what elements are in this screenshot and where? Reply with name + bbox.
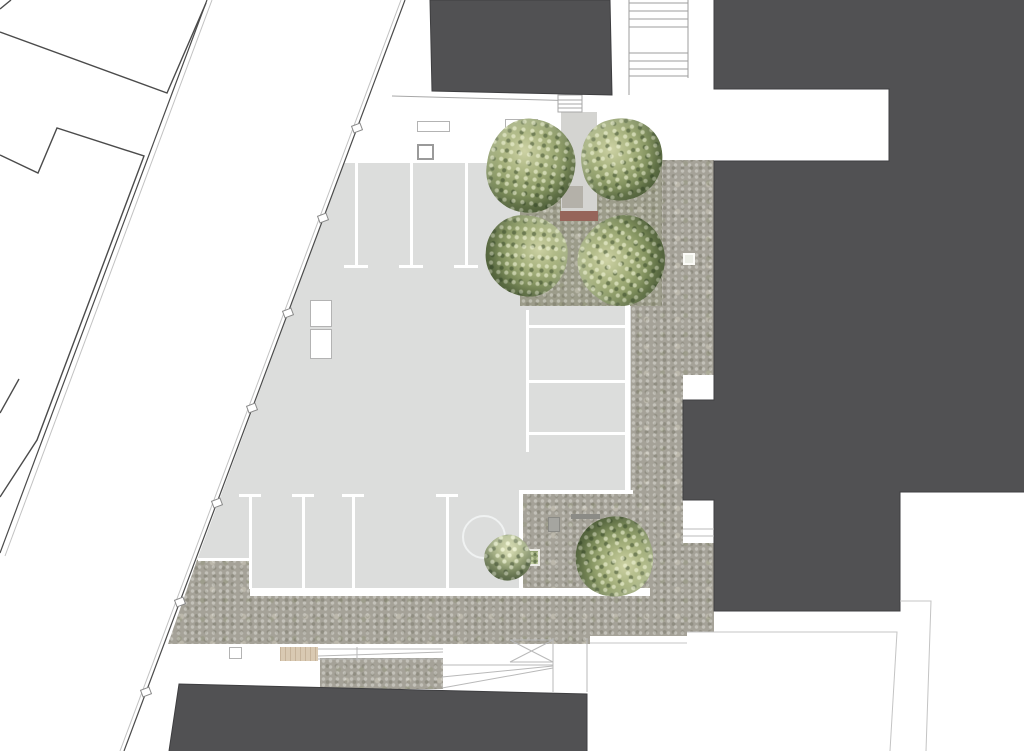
building-outline-b (0, 128, 144, 497)
building-bottom-outline (169, 684, 587, 751)
ramp-marks (318, 638, 587, 692)
street-post (283, 308, 294, 318)
exterior-stair-ladder (629, 0, 688, 95)
building-outline-fragment (0, 0, 11, 9)
street-post (212, 498, 223, 508)
building-outline-a (0, 3, 206, 93)
street-post (318, 213, 329, 223)
stair-treads (629, 3, 688, 76)
property-lines (590, 601, 931, 751)
site-plan-canvas (0, 0, 1024, 751)
building-edges (169, 0, 1024, 751)
street-post (352, 123, 363, 133)
stair-stringers (629, 0, 688, 95)
street-post (247, 403, 258, 413)
street-near-edge (124, 0, 405, 751)
recess-lines (683, 529, 714, 536)
street-far-edge (0, 0, 207, 553)
outlined-buildings (0, 0, 206, 497)
street-posts (141, 123, 363, 697)
top-building-details (392, 95, 582, 112)
property-line (900, 601, 931, 751)
street-far-curb (5, 0, 212, 556)
building-top-outline (430, 0, 612, 95)
property-line (687, 632, 897, 751)
street-post (175, 597, 186, 607)
street-near-curb (120, 0, 401, 751)
path-band-lines (318, 647, 443, 661)
ramp-strip-edges (553, 638, 587, 692)
ramp-wedge (442, 665, 553, 688)
ramp-cross (510, 640, 553, 662)
building-base-line (392, 96, 582, 101)
building-outline-fragment (0, 379, 19, 413)
linework-overlay (0, 0, 1024, 751)
building-right-outline (683, 0, 1024, 611)
street-post (141, 687, 152, 697)
